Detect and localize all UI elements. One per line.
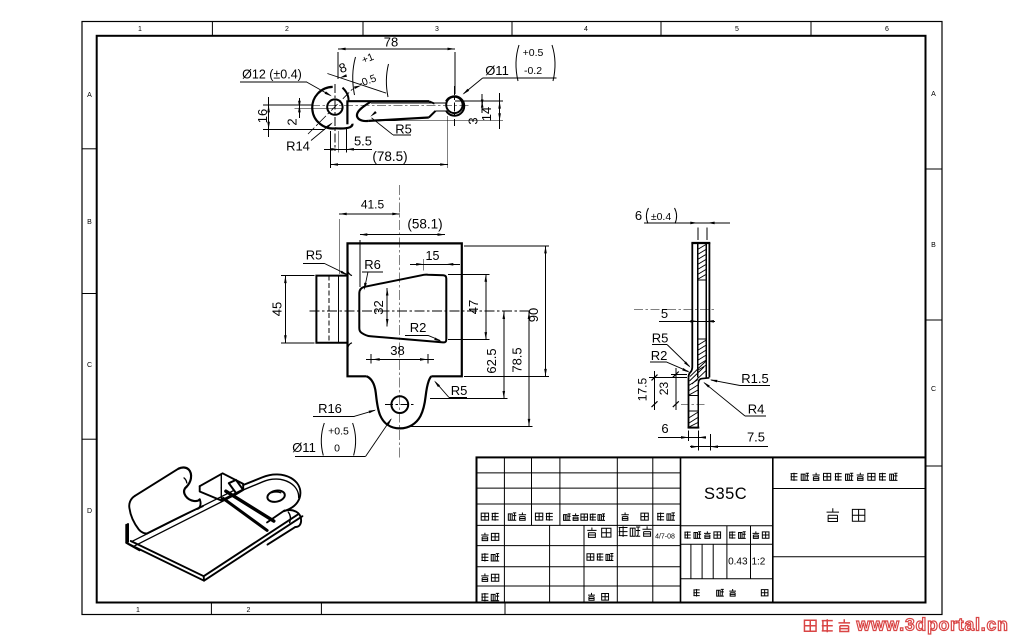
svg-text:B: B bbox=[87, 219, 92, 226]
svg-text:C: C bbox=[931, 386, 936, 393]
svg-text:17.5: 17.5 bbox=[636, 377, 650, 401]
svg-text:16: 16 bbox=[255, 109, 270, 123]
svg-text:2: 2 bbox=[285, 26, 289, 33]
svg-text:2: 2 bbox=[285, 118, 300, 125]
svg-text:1: 1 bbox=[138, 26, 142, 33]
svg-text:41.5: 41.5 bbox=[361, 198, 385, 212]
svg-text:45: 45 bbox=[270, 302, 285, 316]
svg-text:Ø11: Ø11 bbox=[292, 440, 316, 455]
svg-text:R1.5: R1.5 bbox=[741, 371, 768, 386]
svg-text:R2: R2 bbox=[651, 348, 668, 363]
svg-text:78: 78 bbox=[384, 35, 398, 50]
svg-text:R2: R2 bbox=[410, 320, 427, 335]
svg-text:R5: R5 bbox=[306, 248, 323, 263]
svg-text:±0.4: ±0.4 bbox=[651, 211, 672, 223]
svg-text:C: C bbox=[87, 362, 92, 369]
svg-text:D: D bbox=[87, 508, 92, 515]
svg-text:38: 38 bbox=[390, 343, 404, 358]
svg-text:6: 6 bbox=[661, 421, 668, 436]
svg-text:0: 0 bbox=[334, 443, 340, 455]
svg-text:R5: R5 bbox=[652, 331, 669, 346]
svg-text:14: 14 bbox=[479, 107, 494, 121]
svg-text:5: 5 bbox=[661, 306, 668, 321]
svg-text:4: 4 bbox=[584, 26, 588, 33]
svg-text:90: 90 bbox=[526, 308, 541, 322]
svg-text:5: 5 bbox=[735, 26, 739, 33]
svg-text:R14: R14 bbox=[286, 139, 310, 154]
svg-text:1:2: 1:2 bbox=[751, 557, 765, 568]
svg-text:R5: R5 bbox=[451, 383, 468, 398]
svg-text:-0.2: -0.2 bbox=[524, 65, 542, 77]
svg-text:32: 32 bbox=[371, 300, 386, 314]
svg-text:R16: R16 bbox=[318, 401, 342, 416]
svg-text:+0.5: +0.5 bbox=[328, 426, 349, 438]
svg-text:2: 2 bbox=[247, 607, 251, 614]
svg-text:R5: R5 bbox=[395, 122, 412, 137]
svg-text:6: 6 bbox=[885, 26, 889, 33]
svg-text:7.5: 7.5 bbox=[747, 430, 765, 445]
svg-text:3: 3 bbox=[435, 26, 439, 33]
svg-text:47: 47 bbox=[466, 300, 481, 314]
svg-text:1: 1 bbox=[136, 607, 140, 614]
svg-text:78.5: 78.5 bbox=[510, 347, 525, 372]
svg-text:(58.1): (58.1) bbox=[407, 217, 442, 232]
svg-text:23: 23 bbox=[657, 382, 671, 396]
svg-text:S35C: S35C bbox=[704, 485, 747, 503]
svg-text:R6: R6 bbox=[364, 257, 381, 272]
svg-text:6: 6 bbox=[635, 208, 642, 223]
svg-text:A: A bbox=[87, 92, 92, 99]
svg-text:5.5: 5.5 bbox=[354, 134, 372, 149]
svg-text:4/7-08: 4/7-08 bbox=[655, 534, 675, 541]
svg-text:Ø12 (±0.4): Ø12 (±0.4) bbox=[242, 68, 302, 82]
svg-text:www.3dportal.cn: www.3dportal.cn bbox=[856, 615, 1009, 635]
svg-text:+0.5: +0.5 bbox=[523, 47, 544, 59]
svg-text:A: A bbox=[931, 91, 936, 98]
svg-text:R4: R4 bbox=[748, 402, 765, 417]
svg-text:0.43: 0.43 bbox=[728, 557, 748, 568]
svg-text:15: 15 bbox=[426, 249, 440, 263]
svg-text:62.5: 62.5 bbox=[484, 348, 499, 373]
svg-text:(78.5): (78.5) bbox=[372, 149, 407, 164]
svg-text:B: B bbox=[931, 242, 936, 249]
svg-text:Ø11: Ø11 bbox=[485, 63, 509, 78]
